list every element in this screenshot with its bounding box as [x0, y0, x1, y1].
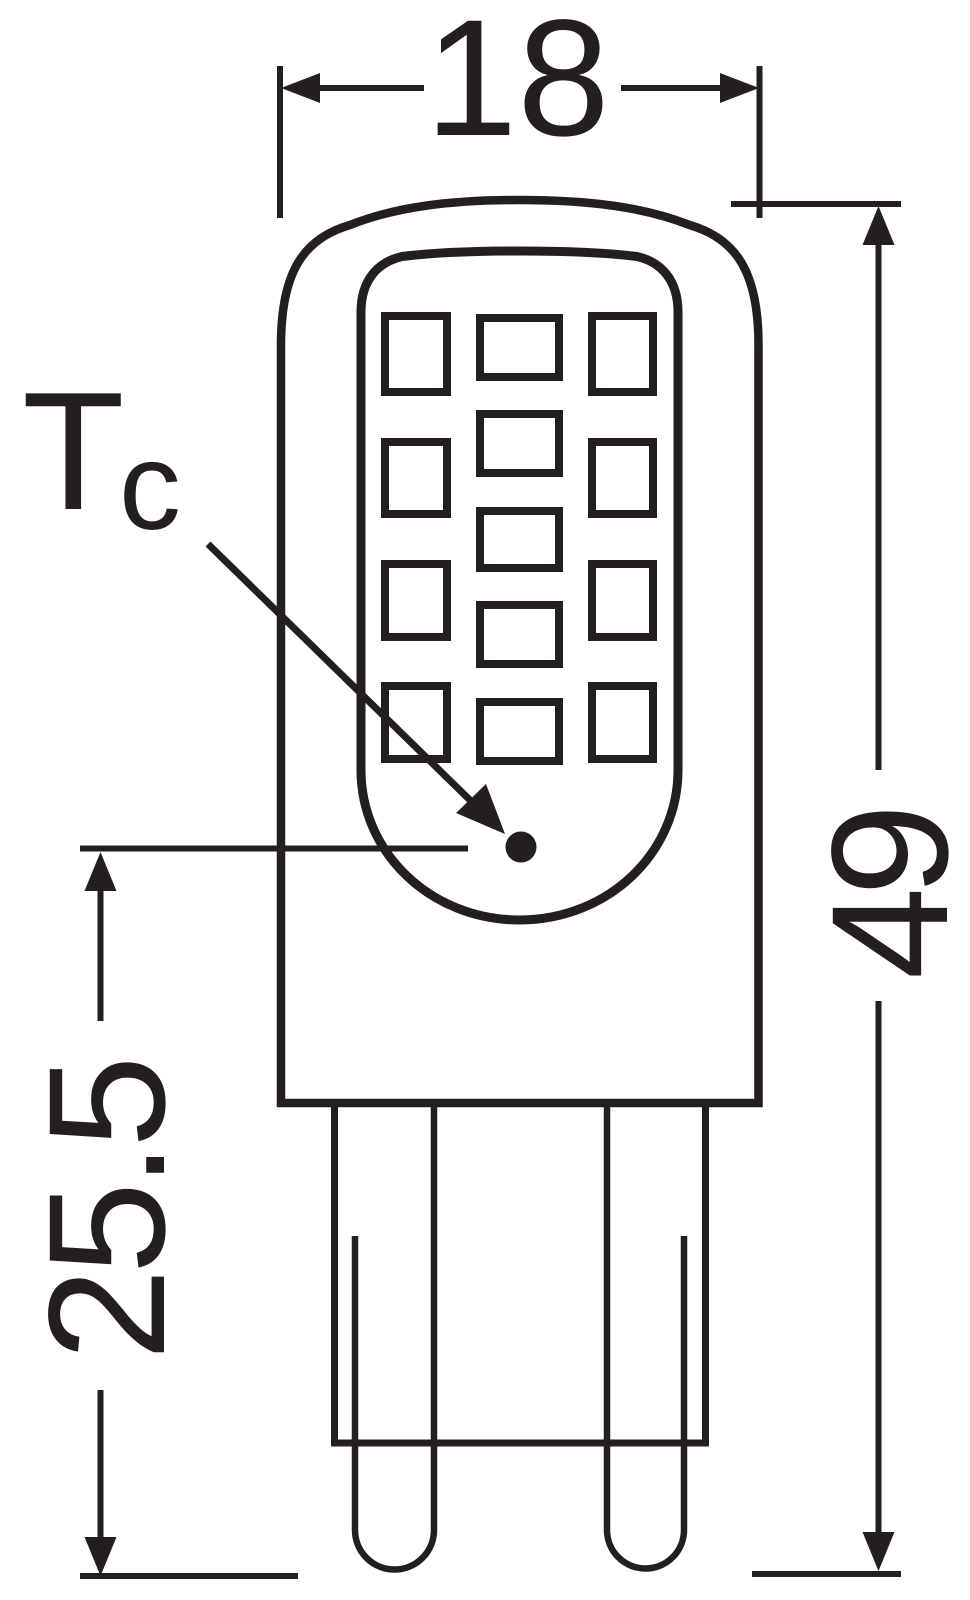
- svg-text:c: c: [119, 418, 181, 556]
- svg-text:49: 49: [798, 811, 970, 979]
- svg-text:T: T: [22, 357, 125, 545]
- svg-text:25.5: 25.5: [15, 1061, 200, 1360]
- svg-text:18: 18: [425, 0, 610, 171]
